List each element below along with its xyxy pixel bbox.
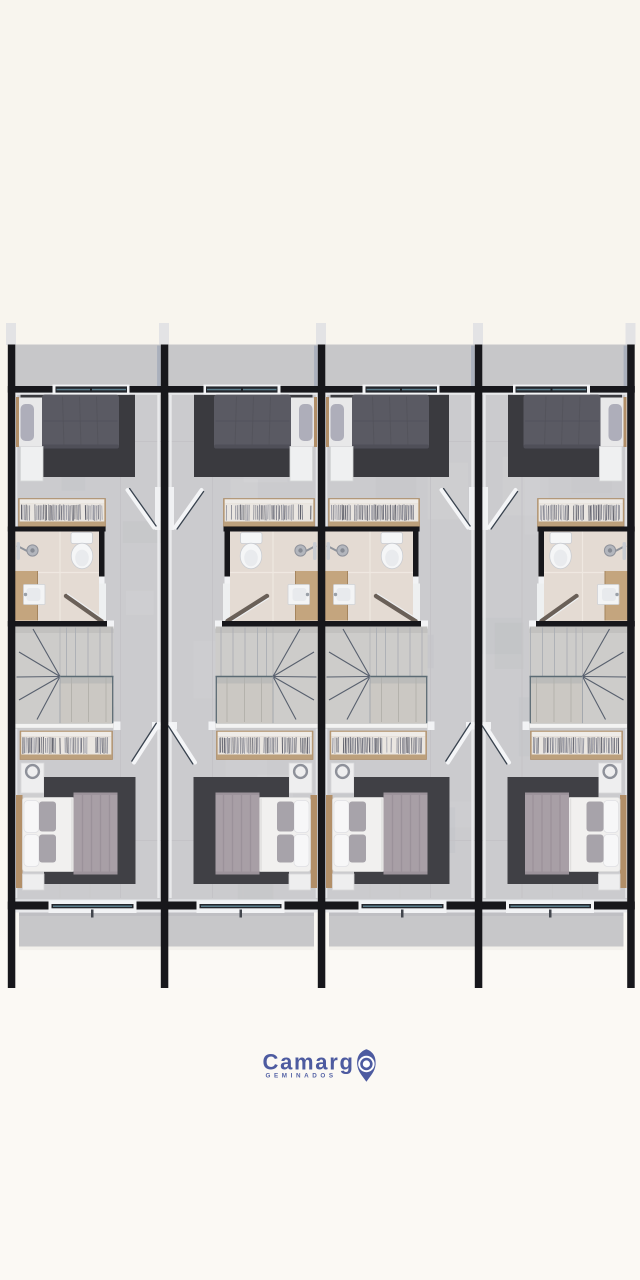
svg-text:Camarg: Camarg <box>263 1050 355 1075</box>
svg-text:GEMINADOS: GEMINADOS <box>266 1072 337 1079</box>
